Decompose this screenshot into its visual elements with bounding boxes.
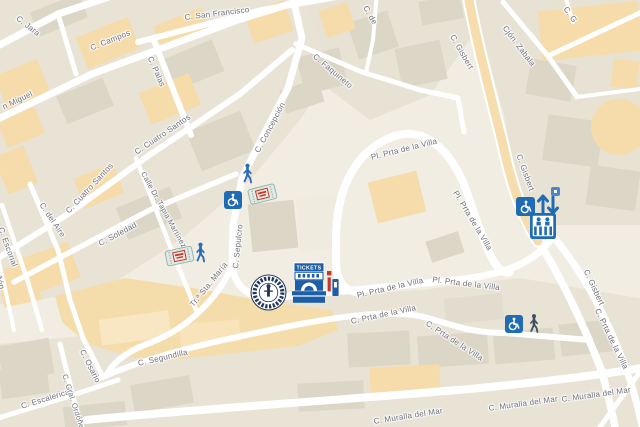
tickets-booth-label: TICKETS <box>297 265 322 271</box>
circular-seal-icon[interactable] <box>250 274 287 316</box>
walking-person-icon[interactable] <box>240 163 255 189</box>
ticket-booth-icon[interactable]: TICKETS <box>292 262 339 311</box>
map-canvas[interactable]: C. Jara C. Campos C. San Francisco C. Pa… <box>0 0 640 427</box>
wheelchair-icon[interactable] <box>505 315 523 333</box>
wheelchair-icon[interactable] <box>224 191 242 209</box>
dark-walking-person-icon[interactable] <box>527 313 541 339</box>
small-poi-square-icon[interactable] <box>551 187 560 196</box>
elevator-icon[interactable] <box>530 213 556 244</box>
